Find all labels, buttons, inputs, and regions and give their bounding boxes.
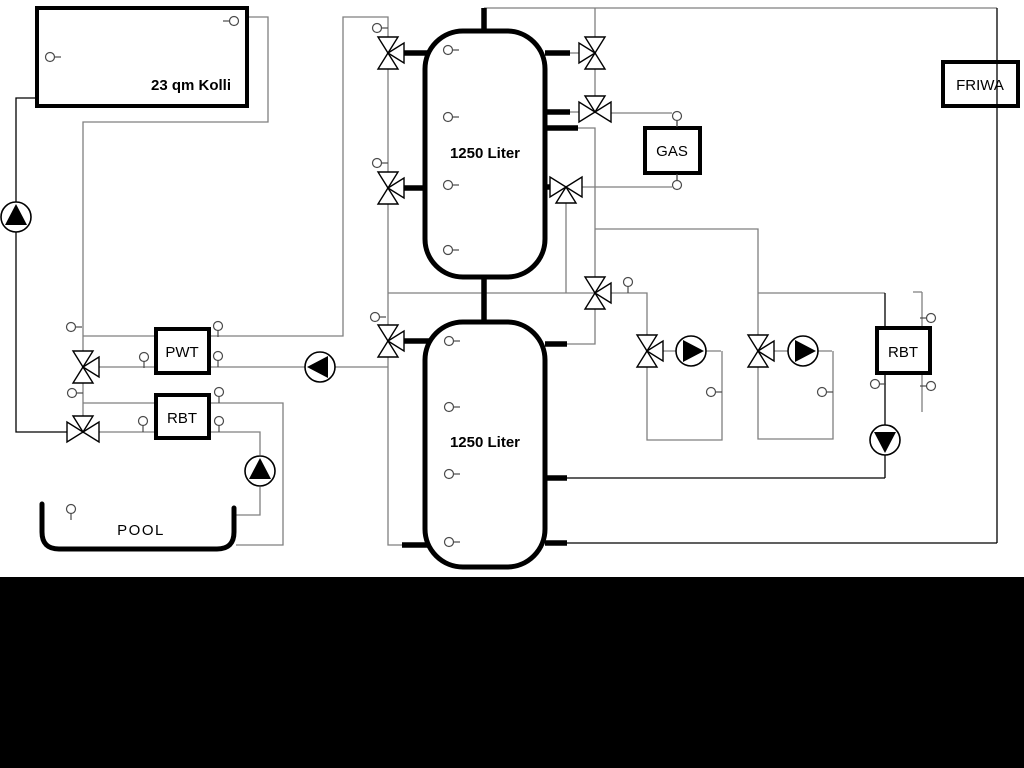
solar-pump-icon	[1, 202, 31, 232]
pwt-loading-pump-icon	[305, 352, 335, 382]
pwt-label: PWT	[165, 344, 198, 361]
tank2-label: 1250 Liter	[450, 434, 520, 451]
rbt-dhw-pump-icon	[870, 425, 900, 455]
circuit1-pump-icon	[676, 336, 706, 366]
collector-label: 23 qm Kolli	[151, 77, 231, 94]
rbt-dhw-heat-exchanger: RBT	[877, 328, 930, 373]
gas-boiler: GAS	[645, 128, 700, 173]
pwt-heat-exchanger: PWT	[156, 329, 209, 373]
pool-label: POOL	[117, 522, 165, 539]
rbt-dhw-label: RBT	[888, 344, 918, 361]
heating-schematic: 23 qm Kolli 1250 Liter 1250 Liter PWT RB…	[0, 0, 1024, 768]
circuit2-pump-icon	[788, 336, 818, 366]
tank1-label: 1250 Liter	[450, 145, 520, 162]
footer-band	[0, 577, 1024, 768]
friwa-station: FRIWA	[943, 62, 1018, 106]
solar-collector: 23 qm Kolli	[37, 8, 247, 106]
rbt-pool-label: RBT	[167, 410, 197, 427]
rbt-pool-heat-exchanger: RBT	[156, 395, 209, 438]
gas-label: GAS	[656, 143, 688, 160]
pool-pump-icon	[245, 456, 275, 486]
schematic-page: 23 qm Kolli 1250 Liter 1250 Liter PWT RB…	[0, 0, 1024, 768]
buffer-tank-bottom: 1250 Liter	[425, 322, 545, 567]
buffer-tank-top: 1250 Liter	[425, 31, 545, 277]
